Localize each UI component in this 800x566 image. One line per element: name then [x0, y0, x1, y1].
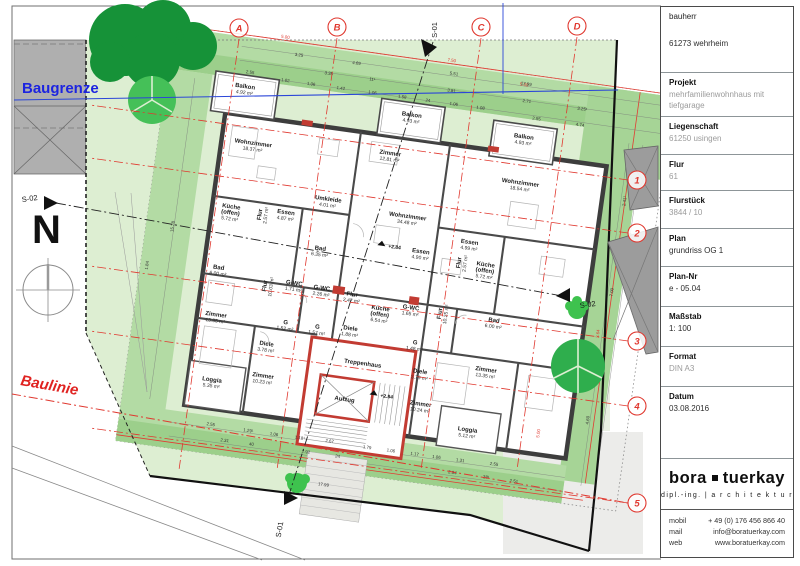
contact-value: + 49 (0) 176 456 866 40	[708, 515, 785, 526]
logo-name: boratuerkay	[661, 469, 793, 488]
tree-round-right	[551, 339, 605, 393]
grid-bubble-label: A	[235, 24, 243, 35]
room-label: Essen4.99 m²	[460, 239, 480, 253]
grid-bubble-label: 2	[633, 229, 640, 240]
tb-field-value: 61	[669, 172, 785, 183]
tb-field-value: grundriss OG 1	[669, 246, 785, 257]
logo-tagline: dipl.-ing. | a r c h i t e k t u r	[661, 492, 793, 499]
contact-list: mobil+ 49 (0) 176 456 866 40mailinfo@bor…	[661, 509, 793, 548]
contact-row: mobil+ 49 (0) 176 456 866 40	[669, 515, 785, 526]
room-label: Diele3.79 m²	[410, 368, 429, 382]
title-block-fields: bauherr61273 wehrheimProjektmehrfamilien…	[661, 7, 793, 459]
contact-row: webwww.boratuerkay.com	[669, 537, 785, 548]
tb-field-row: Plangrundriss OG 1	[661, 229, 793, 267]
grid-bubble-label: 3	[634, 337, 640, 348]
tb-field-value: 61273 wehrheim	[669, 39, 785, 50]
room-label: G-WC2.26 m²	[312, 285, 331, 299]
tb-field-label: Liegenschaft	[669, 122, 785, 131]
contact-row: mailinfo@boratuerkay.com	[669, 526, 785, 537]
tb-field-label: Projekt	[669, 78, 785, 87]
contact-value: info@boratuerkay.com	[713, 526, 785, 537]
tb-field-row: bauherr61273 wehrheim	[661, 7, 793, 73]
tb-field-label: Flur	[669, 160, 785, 169]
tb-field-value: DIN A3	[669, 364, 785, 375]
tb-field-label: Flurstück	[669, 196, 785, 205]
logo-name-right: tuerkay	[723, 469, 785, 487]
tb-field-row: Flurstück3844 / 10	[661, 191, 793, 229]
section-label-s02-left: S-02	[21, 193, 38, 204]
dim-label: 5.00	[281, 34, 291, 40]
room-label: Diele3.78 m²	[257, 341, 276, 355]
tb-field-value: 61250 usingen	[669, 134, 785, 145]
baulinie-label: Baulinie	[19, 372, 79, 399]
contact-label: mobil	[669, 515, 686, 526]
grid-bubble-label: 5	[634, 499, 640, 510]
tb-field-row: Datum03.08.2016	[661, 387, 793, 459]
baugrenze-label: Baugrenze	[22, 80, 99, 97]
grid-bubble-label: D	[574, 22, 581, 33]
tb-field-value: e - 05.04	[669, 284, 785, 295]
tb-field-row: Maßstab1: 100	[661, 307, 793, 347]
tb-field-value: mehrfamilienwohnhaus mit tiefgarage	[669, 90, 785, 112]
tb-field-row: Plan-Nre - 05.04	[661, 267, 793, 307]
room-label: Diele1.88 m²	[341, 325, 360, 339]
tb-field-label: Datum	[669, 392, 785, 401]
compass-icon	[16, 258, 80, 322]
tb-field-row: Flur61	[661, 155, 793, 191]
grid-bubble-label: 4	[633, 402, 640, 413]
grid-bubble-label: C	[478, 23, 485, 34]
section-label-s01-bottom: S-01	[274, 521, 286, 538]
contact-label: mail	[669, 526, 682, 537]
tb-field-value: 03.08.2016	[669, 404, 785, 415]
tb-field-value: 1: 100	[669, 324, 785, 335]
logo-name-left: bora	[669, 469, 707, 487]
tb-field-row: Projektmehrfamilienwohnhaus mit tiefgara…	[661, 73, 793, 117]
tb-field-row: Liegenschaft61250 usingen	[661, 117, 793, 155]
title-block-logo: boratuerkay dipl.-ing. | a r c h i t e k…	[661, 459, 793, 557]
room-label: Essen4.87 m²	[276, 209, 296, 223]
tb-field-label: bauherr	[669, 12, 785, 21]
room-label: Essen4.90 m²	[411, 248, 431, 262]
title-block: bauherr61273 wehrheimProjektmehrfamilien…	[660, 6, 794, 558]
contact-value: www.boratuerkay.com	[715, 537, 785, 548]
tb-field-label: Format	[669, 352, 785, 361]
north-label: N	[32, 208, 61, 252]
tb-field-label: Plan-Nr	[669, 272, 785, 281]
section-label-s01-top: S-01	[430, 22, 439, 38]
room-label: G-WC1.71 m²	[285, 280, 304, 294]
contact-label: web	[669, 537, 682, 548]
tb-field-row: FormatDIN A3	[661, 347, 793, 387]
grid-bubble-label: B	[334, 23, 341, 34]
tree-round-left	[128, 76, 176, 124]
neighbor-strip-left	[14, 40, 86, 174]
tb-field-value: 3844 / 10	[669, 208, 785, 219]
grid-bubble-label: 1	[634, 176, 639, 187]
tb-field-label: Plan	[669, 234, 785, 243]
tb-field-label: Maßstab	[669, 312, 785, 321]
logo-square-icon	[712, 475, 718, 481]
